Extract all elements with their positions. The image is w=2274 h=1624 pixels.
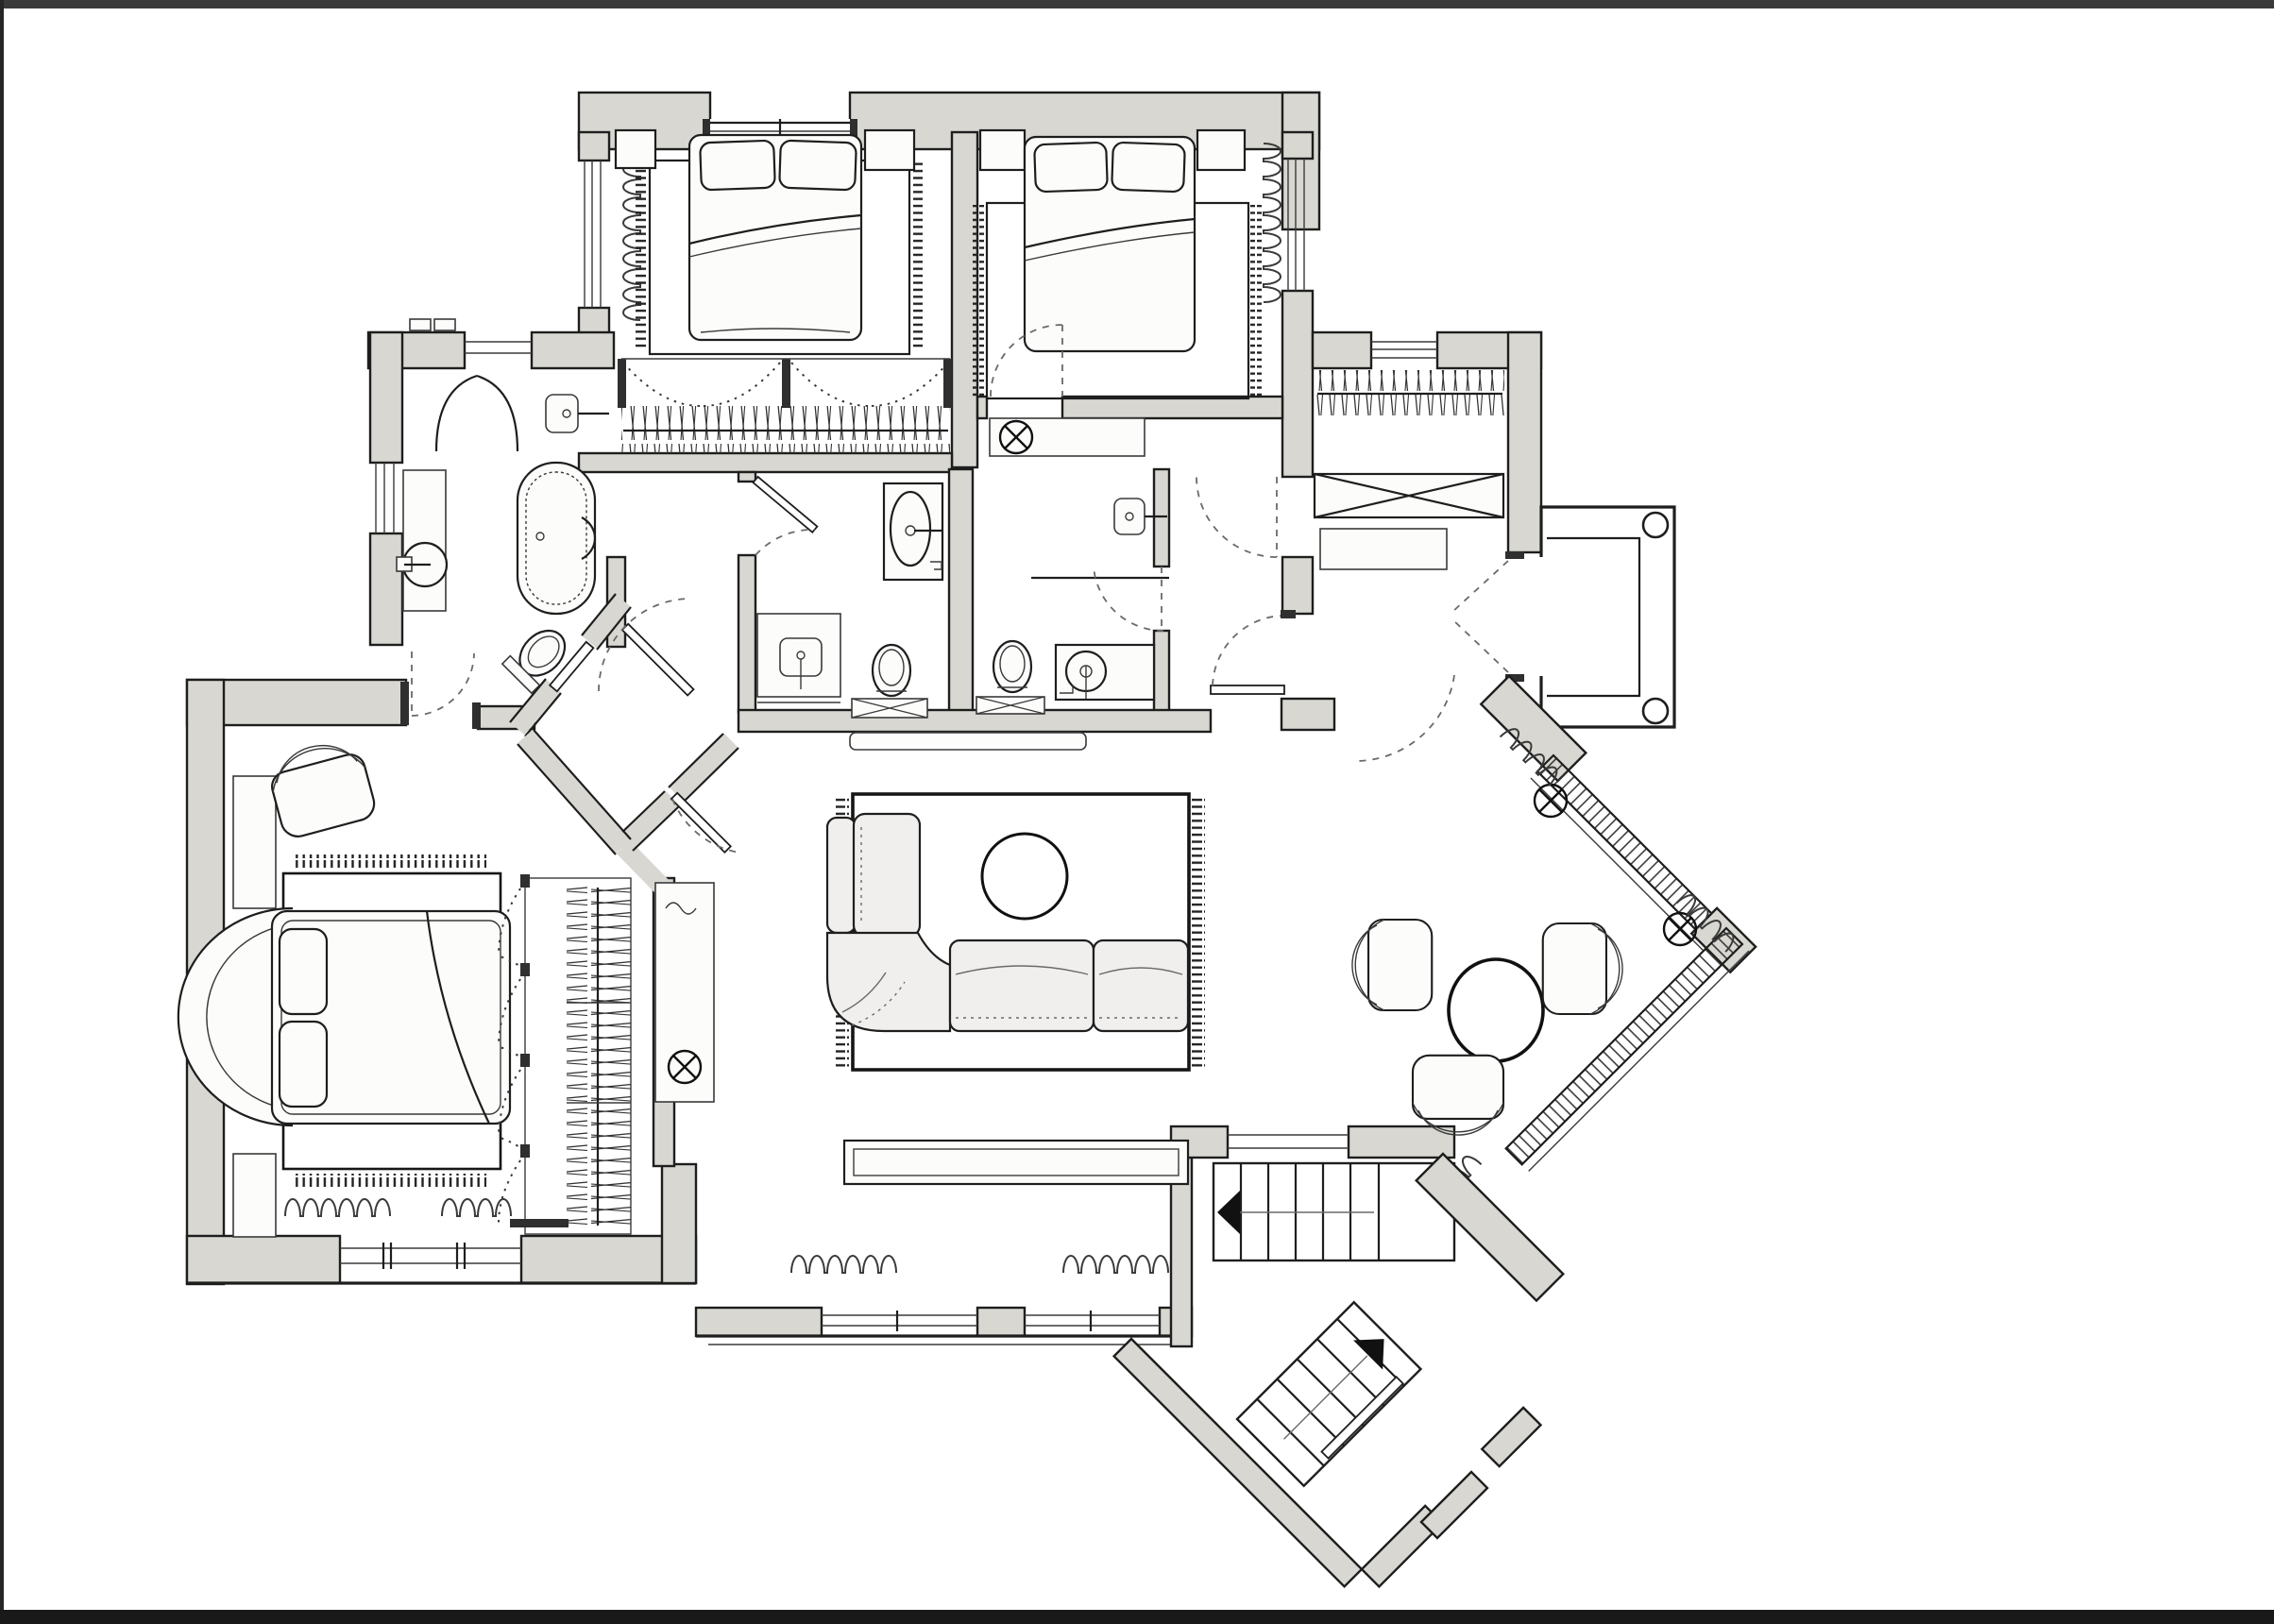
wall-living-right: [1171, 1158, 1192, 1346]
door-nook-hall: [1356, 675, 1454, 761]
wall-master-living-step: [662, 1164, 696, 1283]
room-living: [655, 733, 1205, 1273]
toilet-shower-room: [873, 645, 910, 696]
sill-bracket: [410, 319, 431, 330]
pillow: [700, 141, 775, 191]
wall-vestibule-stub: [623, 847, 661, 886]
sofa-corner: [827, 933, 950, 1031]
crossed-wardrobe-box: [1315, 474, 1503, 517]
toilet-bathroom2: [993, 641, 1031, 692]
ceiling-light-icon: [1535, 785, 1567, 817]
wall-hall-step: [1281, 699, 1334, 730]
shelf: [1320, 529, 1447, 569]
rug-fringe-left: [973, 205, 984, 397]
window-bathroom1: [376, 463, 394, 533]
room-vestibule: [400, 594, 739, 854]
wall-under-closet: [579, 453, 952, 472]
wall-b2-bottom-2: [1062, 397, 1282, 418]
rug-fringe-left: [635, 162, 646, 351]
nightstand: [865, 130, 914, 170]
bathtub: [518, 463, 595, 614]
wall-console: [850, 733, 1086, 750]
room-master-bedroom: [178, 735, 631, 1237]
washbasin-counter-b2: [1056, 645, 1154, 700]
wall-closet-right: [1508, 332, 1541, 552]
door-closet-hall: [1196, 477, 1277, 557]
closet-bedroom1: [618, 359, 952, 453]
washbasin-bathroom1: [397, 470, 447, 611]
crossed-mat-2: [976, 697, 1044, 714]
room-wardrobe-hall: [1315, 370, 1504, 569]
wall-b2-bottom-1: [977, 397, 987, 418]
page-canvas: [0, 0, 2274, 1624]
nightstand: [616, 130, 655, 168]
oval-table: [1449, 959, 1543, 1061]
vanity-counter: [757, 614, 840, 697]
pillow: [1112, 143, 1185, 193]
wall-stair-se-2: [1482, 1408, 1540, 1466]
room-bathroom-2: [976, 499, 1169, 714]
terrace-inner-line: [1547, 538, 1639, 696]
door-threshold-bath1: [465, 342, 532, 353]
wall-living-bottom-1: [696, 1308, 822, 1336]
radiator-living-2: [1063, 1256, 1168, 1273]
sofa-back: [827, 818, 856, 933]
wall-living-bottom-2: [977, 1308, 1025, 1336]
terrace-french-doors: [1452, 551, 1524, 682]
dining-chair: [1413, 1056, 1503, 1135]
round-column: [1643, 513, 1668, 537]
door-vestibule-living: [671, 793, 739, 853]
glazing-upper: [1531, 755, 1725, 950]
window-living-1: [822, 1311, 977, 1331]
window-living-2: [1025, 1311, 1160, 1331]
wall-b2-right-1: [1282, 132, 1313, 159]
side-console-lamp: [655, 883, 714, 1102]
door-shower-room: [753, 477, 817, 555]
wardrobe-master: [499, 874, 631, 1234]
terrace-outline: [1541, 507, 1674, 727]
window-closet-hall: [1371, 342, 1437, 358]
room-shower: [753, 477, 942, 718]
room-bedroom-1: [616, 119, 952, 453]
corridor-niche: [990, 418, 1145, 456]
rug-fringe-right: [911, 162, 923, 351]
wall-between-baths: [949, 469, 973, 713]
door-master-bedroom: [400, 651, 481, 729]
rug-fringe-right: [1192, 798, 1205, 1068]
door-bathroom1: [436, 376, 518, 451]
pillow: [280, 929, 327, 1014]
pillow: [779, 141, 857, 191]
rug-fringe-bottom: [293, 1174, 486, 1187]
wall-master-bottom-left: [187, 1236, 340, 1283]
glazed-partition-stairs: [1228, 1135, 1349, 1148]
room-bathroom-1: [397, 376, 609, 693]
window-bench: [844, 1141, 1188, 1184]
door-living-hall: [1211, 610, 1296, 694]
wall-bath1-left-upper: [370, 332, 402, 463]
dining-chair: [1352, 920, 1432, 1010]
window-master-triple: [340, 1243, 521, 1269]
wall-bath1-top-right: [532, 332, 614, 368]
master-armchair: [264, 735, 378, 840]
bed-master: [178, 908, 510, 1125]
wall-b2-right-2: [1282, 291, 1313, 477]
door-bathroom2: [1094, 567, 1163, 631]
wall-b2-right-3: [1282, 557, 1313, 614]
coffee-table: [982, 834, 1067, 919]
wall-living-top: [738, 710, 1211, 732]
bed-bedroom2: [1025, 137, 1195, 351]
round-column: [1643, 699, 1668, 723]
pillow: [1034, 143, 1108, 193]
sofa-chaise: [854, 814, 920, 937]
wall-corridor-right-2: [738, 555, 755, 712]
wall-bath3-right-2: [1154, 631, 1169, 713]
dining-chair: [1543, 923, 1622, 1014]
sill-bracket: [434, 319, 455, 330]
floor-plan: [0, 0, 2274, 1624]
wall-shelf-upper: [233, 776, 276, 908]
wall-closet-top-left: [1313, 332, 1371, 368]
crossed-mat: [852, 699, 927, 718]
bed-bedroom1: [689, 135, 861, 340]
wall-shelf-lower: [233, 1154, 276, 1237]
wall-lamp-bathroom1: [546, 395, 609, 432]
nightstand: [1197, 130, 1245, 170]
radiator-master-2: [442, 1199, 511, 1216]
nightstand: [980, 130, 1025, 170]
radiator-master-1: [285, 1199, 390, 1216]
wall-bath3-right-1: [1154, 469, 1169, 567]
room-bedroom-2: [973, 130, 1281, 398]
wall-bath1-left-lower: [370, 533, 402, 645]
ceiling-light-icon: [1664, 913, 1696, 945]
window-bedroom1-left: [585, 161, 601, 308]
rug-fringe-top: [293, 854, 486, 868]
wall-entry-tip: [1421, 1472, 1487, 1538]
wall-corridor-right-1: [738, 472, 755, 482]
room-terrace: [1452, 507, 1674, 727]
radiator-bedroom2: [1264, 144, 1281, 302]
pillow: [280, 1022, 327, 1107]
wall-b1-left-upper: [579, 132, 609, 161]
washbasin-cabinet: [884, 483, 942, 580]
radiator-living-1: [791, 1256, 896, 1273]
rug-fringe-right: [1250, 205, 1262, 397]
